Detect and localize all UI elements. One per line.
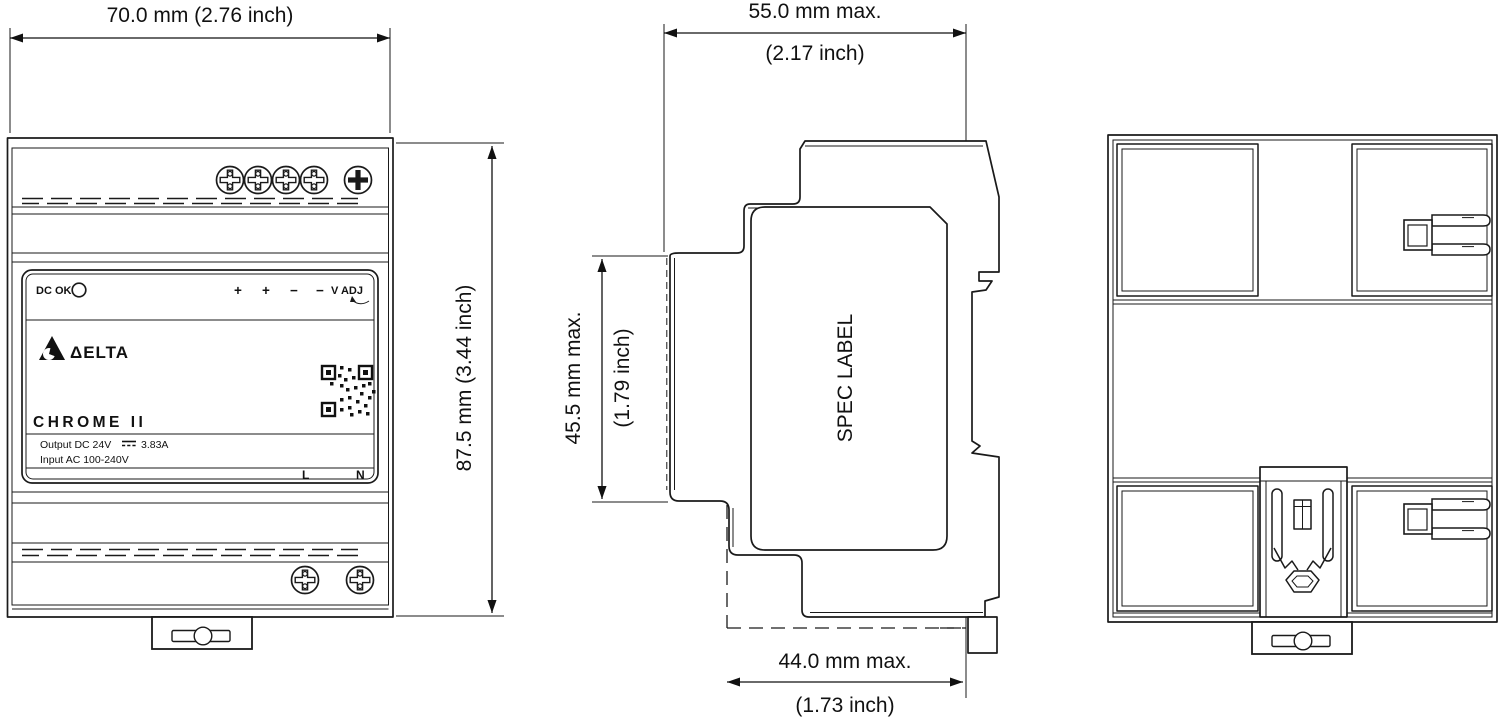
dimension-body-depth: 45.5 mm max. (1.79 inch) xyxy=(562,256,668,502)
earth-screw xyxy=(345,167,372,194)
front-din-rail-slider-tab xyxy=(152,617,252,649)
dimension-height: 87.5 mm (3.44 inch) xyxy=(396,143,504,616)
dimension-width: 70.0 mm (2.76 inch) xyxy=(10,4,390,133)
terminal-plus-2: + xyxy=(262,283,270,298)
front-view: DC OK + + − − V ADJ ΔELTA xyxy=(8,138,394,649)
terminal-minus-1: − xyxy=(290,283,298,298)
dim-height-value: 87.5 mm (3.44 inch) xyxy=(453,285,476,472)
dim-rear-depth-value: 44.0 mm max. xyxy=(778,650,911,673)
din-clip-channel xyxy=(1260,467,1347,617)
dimension-rear-depth: 44.0 mm max. (1.73 inch) xyxy=(727,650,963,717)
dim-width-value: 70.0 mm (2.76 inch) xyxy=(107,4,294,27)
dim-depth-inch: (2.17 inch) xyxy=(765,42,864,65)
dim-rear-depth-inch: (1.73 inch) xyxy=(795,694,894,717)
dc-ok-label: DC OK xyxy=(36,285,72,297)
input-rating-label: Input AC 100-240V xyxy=(40,454,129,466)
side-din-clip-tab xyxy=(968,617,997,653)
side-view: SPEC LABEL xyxy=(664,24,999,698)
dimension-depth: 55.0 mm max. (2.17 inch) xyxy=(664,0,966,65)
terminal-minus-2: − xyxy=(316,283,324,298)
v-adj-label: V ADJ xyxy=(331,285,363,297)
front-label-panel: DC OK + + − − V ADJ ΔELTA xyxy=(22,270,378,483)
brand-wordmark: ΔELTA xyxy=(70,343,129,362)
dim-body-depth-inch: (1.79 inch) xyxy=(611,328,634,427)
back-view xyxy=(1108,135,1497,654)
output-terminal-screws xyxy=(217,167,372,194)
neutral-terminal-label: N xyxy=(356,468,365,482)
din-power-supply-dimension-drawing: DC OK + + − − V ADJ ΔELTA xyxy=(0,0,1500,720)
spec-label-text: SPEC LABEL xyxy=(834,314,857,442)
dim-body-depth-value: 45.5 mm max. xyxy=(562,311,585,444)
series-name: CHROME II xyxy=(33,414,146,431)
line-terminal-label: L xyxy=(302,468,309,482)
output-rating-label: Output DC 24V xyxy=(40,439,111,451)
dc-ok-led-indicator xyxy=(72,283,86,297)
back-din-rail-slider-tab xyxy=(1252,622,1352,654)
terminal-plus-1: + xyxy=(234,283,242,298)
dim-depth-value: 55.0 mm max. xyxy=(748,0,881,23)
output-current-value: 3.83A xyxy=(141,439,168,451)
technical-drawing-page: DC OK + + − − V ADJ ΔELTA xyxy=(0,0,1500,720)
